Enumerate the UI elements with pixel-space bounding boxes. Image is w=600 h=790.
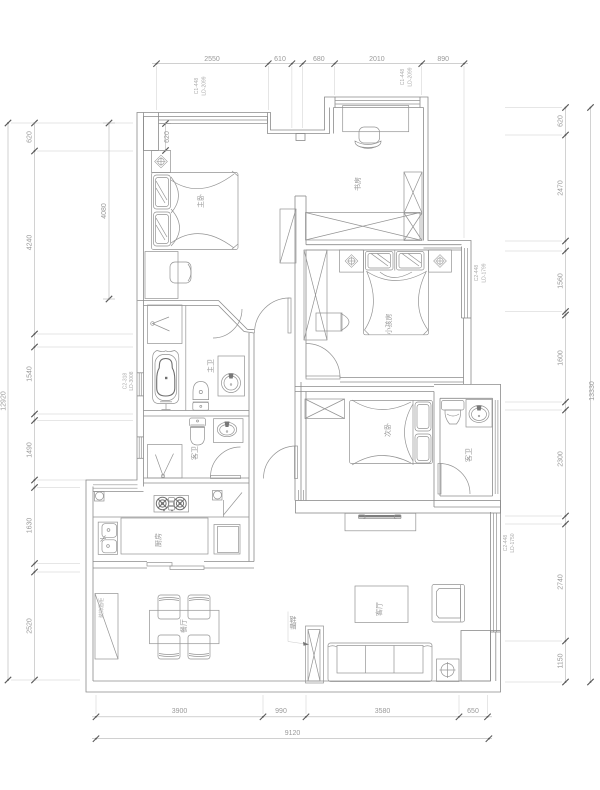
svg-text:620: 620 xyxy=(558,115,565,127)
svg-text:2520: 2520 xyxy=(27,618,34,634)
svg-text:4080: 4080 xyxy=(101,203,108,219)
svg-text:LD-3008: LD-3008 xyxy=(129,371,135,390)
svg-text:LD-2099: LD-2099 xyxy=(202,76,208,95)
svg-text:3580: 3580 xyxy=(375,708,391,715)
svg-text:4240: 4240 xyxy=(27,235,34,251)
svg-text:680: 680 xyxy=(313,56,325,63)
svg-text:客卫: 客卫 xyxy=(190,446,199,460)
svg-text:990: 990 xyxy=(275,708,287,715)
svg-text:1490: 1490 xyxy=(27,442,34,458)
svg-text:2550: 2550 xyxy=(204,56,220,63)
svg-text:装饰酒柜: 装饰酒柜 xyxy=(98,598,105,618)
svg-text:客厅: 客厅 xyxy=(375,602,384,616)
svg-text:1560: 1560 xyxy=(558,273,565,289)
svg-text:LD-2099: LD-2099 xyxy=(408,67,414,86)
svg-text:主卧: 主卧 xyxy=(196,194,205,208)
svg-text:C2-448: C2-448 xyxy=(474,265,480,282)
svg-text:LD-1750: LD-1750 xyxy=(510,533,516,552)
svg-text:650: 650 xyxy=(467,708,479,715)
svg-text:890: 890 xyxy=(437,56,449,63)
svg-text:C2-448: C2-448 xyxy=(503,535,509,552)
svg-text:2300: 2300 xyxy=(558,451,565,467)
svg-text:1540: 1540 xyxy=(27,366,34,382)
svg-text:2470: 2470 xyxy=(558,180,565,196)
svg-text:C1-448: C1-448 xyxy=(194,78,200,95)
svg-text:LD-1799: LD-1799 xyxy=(482,263,488,282)
svg-text:3900: 3900 xyxy=(172,708,188,715)
svg-text:9120: 9120 xyxy=(285,730,301,737)
svg-text:620: 620 xyxy=(27,131,34,143)
svg-text:1600: 1600 xyxy=(558,350,565,366)
svg-text:小孩房: 小孩房 xyxy=(384,314,393,335)
svg-text:餐厅: 餐厅 xyxy=(179,619,188,633)
svg-text:厨房: 厨房 xyxy=(154,533,163,547)
svg-text:C2-318: C2-318 xyxy=(123,373,129,390)
svg-text:1150: 1150 xyxy=(558,653,565,668)
svg-text:12920: 12920 xyxy=(1,391,8,411)
svg-text:1630: 1630 xyxy=(27,518,34,534)
svg-text:帽: 帽 xyxy=(290,622,297,631)
svg-text:C1-448: C1-448 xyxy=(400,69,406,86)
svg-text:次卧: 次卧 xyxy=(383,423,392,437)
svg-text:610: 610 xyxy=(274,56,286,63)
svg-text:客卫: 客卫 xyxy=(464,448,473,462)
svg-text:2010: 2010 xyxy=(369,56,385,63)
svg-text:620: 620 xyxy=(164,131,171,143)
svg-text:书房: 书房 xyxy=(353,177,362,191)
svg-text:主卫: 主卫 xyxy=(206,359,215,373)
svg-text:13330: 13330 xyxy=(589,381,596,401)
svg-text:2740: 2740 xyxy=(558,574,565,590)
